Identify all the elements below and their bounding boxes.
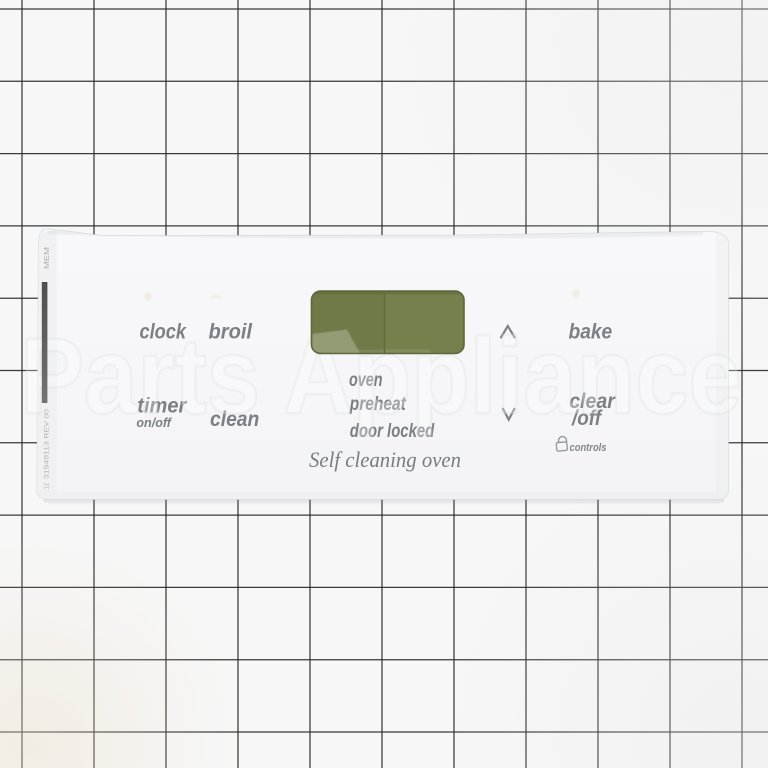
svg-text:MEM: MEM — [42, 247, 51, 269]
svg-text:12: 12 — [45, 482, 51, 489]
svg-text:Self cleaning oven: Self cleaning oven — [309, 447, 461, 472]
svg-text:31949113 REV 00: 31949113 REV 00 — [45, 408, 51, 479]
svg-text:controls: controls — [570, 442, 607, 454]
